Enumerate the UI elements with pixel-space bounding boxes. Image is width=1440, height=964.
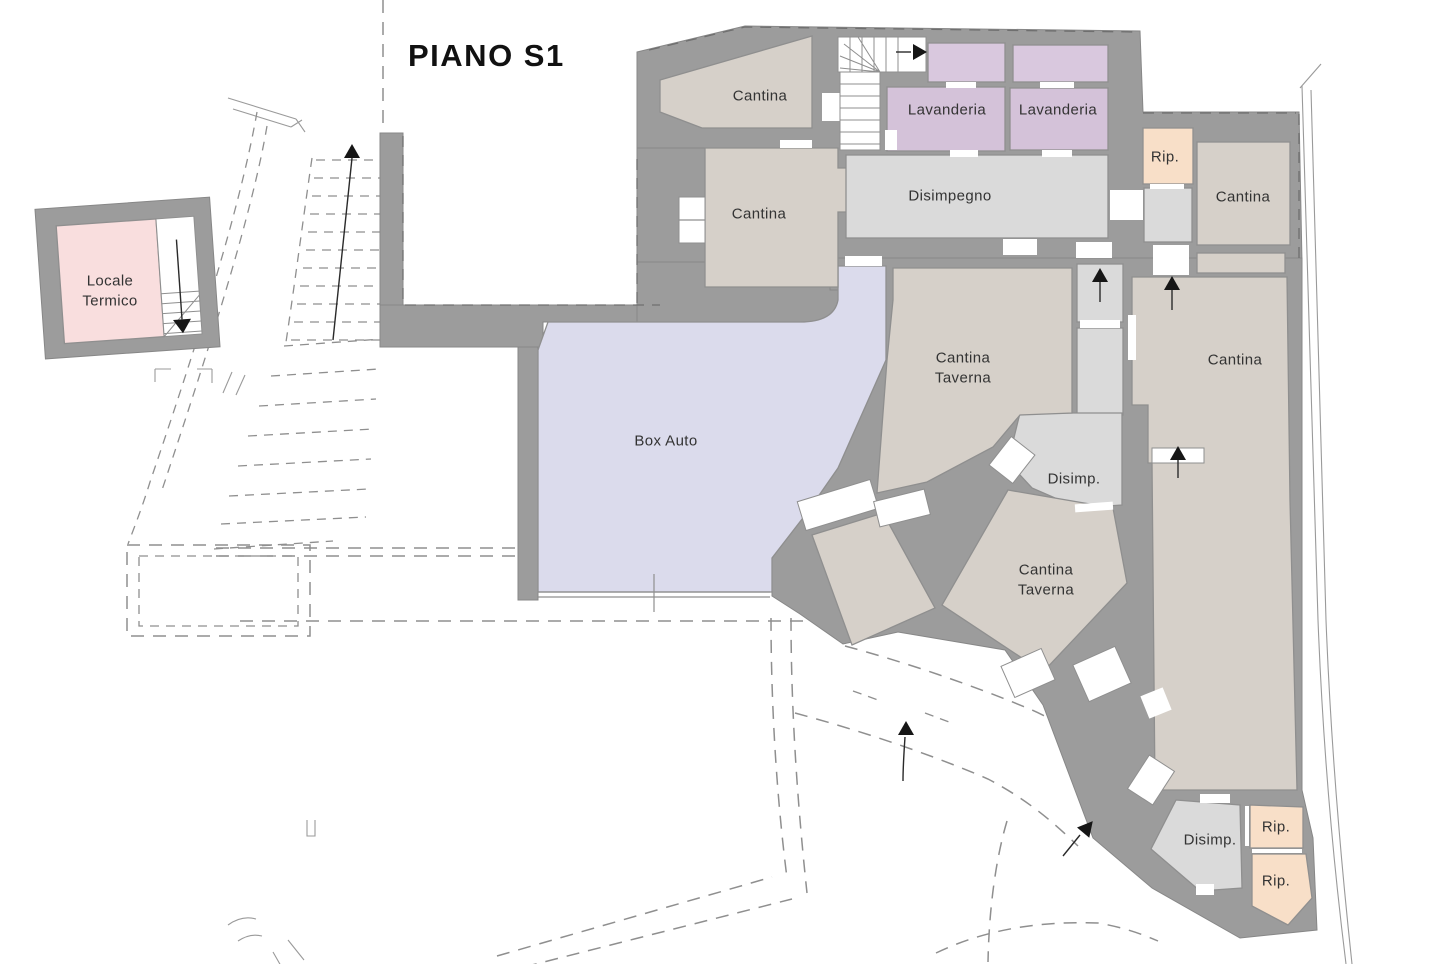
page-title: PIANO S1	[408, 38, 565, 74]
room-rip-top-label: Rip.	[1151, 147, 1179, 167]
room-lavanderia-right-upper-shape	[1013, 45, 1108, 82]
room-cantina-right-label: Cantina	[1208, 350, 1263, 370]
cantina-taverna-1-line2: Taverna	[935, 369, 991, 386]
room-box-auto-label: Box Auto	[634, 431, 697, 451]
cantina-taverna-1-line1: Cantina	[936, 350, 991, 367]
room-cantina-top-right-label: Cantina	[1216, 187, 1271, 207]
room-cantina-taverna-1-label: Cantina Taverna	[935, 349, 991, 388]
room-lavanderia-left-label: Lavanderia	[908, 100, 986, 120]
room-locale-termico-label: Locale Termico	[82, 272, 137, 311]
room-cantina-mid-label: Cantina	[732, 204, 787, 224]
rip-landing-shape	[1144, 188, 1192, 242]
room-lavanderia-left-upper-shape	[928, 43, 1005, 82]
locale-termico-line1: Locale	[87, 273, 134, 290]
room-lavanderia-right-label: Lavanderia	[1019, 100, 1097, 120]
room-cantina-top-label: Cantina	[733, 86, 788, 106]
cantina-taverna-2-line2: Taverna	[1018, 581, 1074, 598]
floor-plan-drawing	[0, 0, 1440, 964]
corridor-shape	[1077, 328, 1123, 415]
floor-plan-page: PIANO S1 Cantina Cantina Lavanderia Lava…	[0, 0, 1440, 964]
locale-termico-line2: Termico	[82, 292, 137, 309]
room-disimp-center-label: Disimp.	[1048, 469, 1101, 489]
room-disimpegno-label: Disimpegno	[908, 186, 991, 206]
room-rip-bottom-1-label: Rip.	[1262, 817, 1290, 837]
cantina-taverna-2-line1: Cantina	[1019, 562, 1074, 579]
room-cantina-taverna-2-label: Cantina Taverna	[1018, 561, 1074, 600]
room-rip-bottom-2-label: Rip.	[1262, 871, 1290, 891]
exterior-stair-up-arrow-icon	[344, 144, 360, 158]
cantina-right-strip-shape	[1197, 253, 1285, 273]
room-disimp-bottom-label: Disimp.	[1184, 830, 1237, 850]
garage-west-wall	[518, 347, 538, 600]
path-up-arrow-icon	[898, 721, 914, 735]
